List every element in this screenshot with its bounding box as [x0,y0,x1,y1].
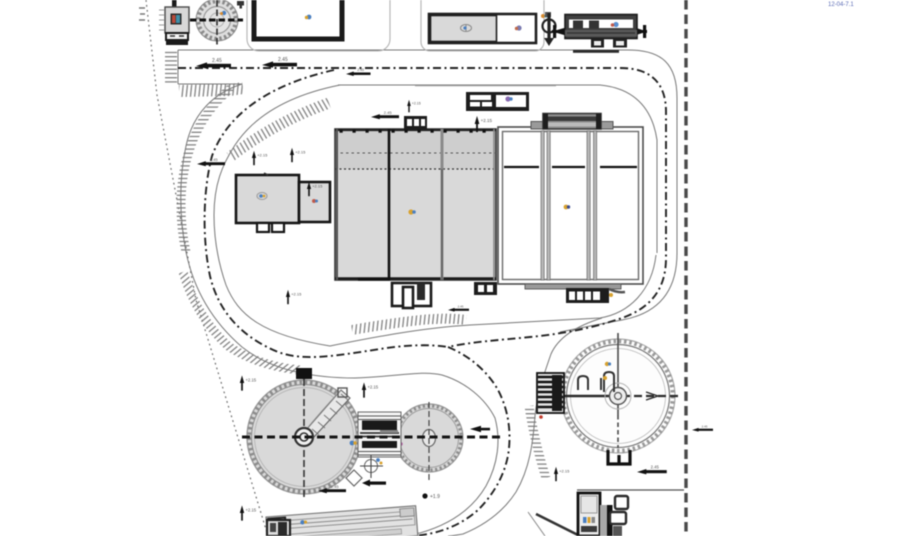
svg-text:2.45: 2.45 [278,57,288,63]
svg-text:+2.15: +2.15 [245,507,256,512]
svg-text:+2.15: +2.15 [295,149,306,154]
svg-text:2.45: 2.45 [212,58,222,64]
svg-text:+2.15: +2.15 [559,468,570,473]
svg-text:+2.15: +2.15 [245,377,256,382]
svg-text:2.45: 2.45 [702,425,708,429]
svg-text:+2.15: +2.15 [367,384,378,389]
svg-text:+2.15: +2.15 [412,102,421,106]
svg-text:+2.15: +2.15 [312,183,323,188]
svg-text:+2.15: +2.15 [291,291,302,296]
svg-text:2.45: 2.45 [331,484,340,489]
svg-text:2.45: 2.45 [458,305,464,309]
svg-text:2.45: 2.45 [384,110,393,115]
svg-text:2.45: 2.45 [210,157,219,162]
svg-text:12-04-7.1: 12-04-7.1 [828,2,854,8]
svg-text:+1.9: +1.9 [430,494,440,500]
svg-text:+2.15: +2.15 [481,118,493,123]
svg-text:2.45: 2.45 [357,68,364,72]
svg-text:2.45: 2.45 [651,465,660,470]
svg-text:+2.15: +2.15 [257,152,268,157]
